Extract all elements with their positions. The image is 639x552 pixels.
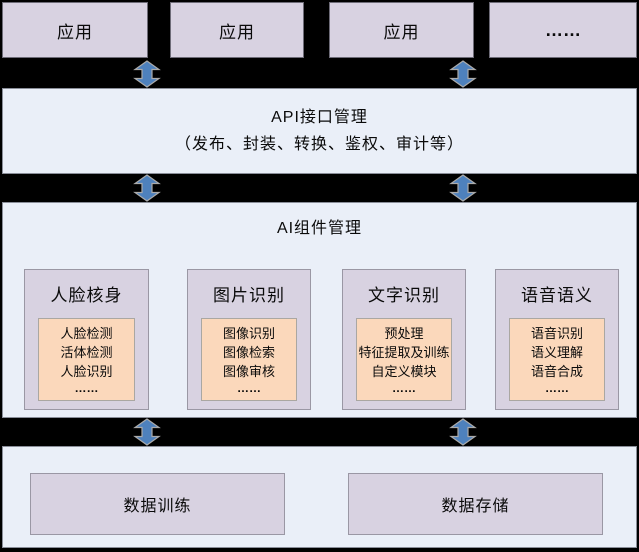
app-box-label: 应用 [384, 18, 420, 43]
double-arrow-icon [449, 60, 477, 88]
api-management-layer: API接口管理 （发布、封装、转换、鉴权、审计等） [2, 88, 637, 174]
module-item-ellipsis: …… [75, 381, 99, 396]
module-title: 人脸核身 [25, 270, 148, 317]
double-arrow-icon [449, 174, 477, 202]
module-item-ellipsis: …… [545, 381, 569, 396]
api-layer-subtitle: （发布、封装、转换、鉴权、审计等） [175, 131, 464, 158]
ai-platform-architecture-diagram: 应用 应用 应用 …… API接口管理 （发布、封装、转换、鉴权、审计等） AI… [0, 0, 639, 552]
module-item: 语音识别 [531, 324, 583, 343]
module-item: 图像审核 [223, 362, 275, 381]
data-box-label: 数据训练 [123, 492, 191, 516]
module-text-recognition: 文字识别 预处理 特征提取及训练 自定义模块 …… [342, 269, 466, 410]
module-item: 图像检索 [223, 343, 275, 362]
double-arrow-icon [133, 174, 161, 202]
module-image-recognition: 图片识别 图像识别 图像检索 图像审核 …… [187, 269, 311, 410]
module-item: 预处理 [384, 324, 423, 343]
ai-layer-title: AI组件管理 [3, 203, 636, 238]
api-layer-title: API接口管理 [271, 104, 368, 131]
module-item-list: 语音识别 语义理解 语音合成 …… [509, 318, 605, 401]
module-item: 语义理解 [531, 343, 583, 362]
module-item-list: 预处理 特征提取及训练 自定义模块 …… [356, 318, 452, 401]
app-box-3: 应用 [329, 2, 474, 58]
module-item: 活体检测 [60, 343, 112, 362]
module-item: 自定义模块 [371, 362, 436, 381]
ai-component-layer: AI组件管理 人脸核身 人脸检测 活体检测 人脸识别 …… 图片识别 图像识别 … [2, 202, 637, 418]
module-title: 文字识别 [343, 270, 465, 317]
module-title: 图片识别 [188, 270, 310, 317]
app-box-more: …… [489, 2, 637, 58]
app-box-label: 应用 [57, 18, 93, 43]
module-item-ellipsis: …… [392, 381, 416, 396]
module-title: 语音语义 [496, 270, 618, 317]
module-face-verification: 人脸核身 人脸检测 活体检测 人脸识别 …… [24, 269, 149, 410]
app-box-label: 应用 [219, 18, 255, 43]
module-item-list: 图像识别 图像检索 图像审核 …… [201, 318, 297, 401]
module-item: 语音合成 [531, 362, 583, 381]
app-box-1: 应用 [2, 2, 148, 58]
data-box-label: 数据存储 [441, 492, 509, 516]
ellipsis-label: …… [545, 20, 581, 41]
module-item: 人脸识别 [60, 362, 112, 381]
data-storage-box: 数据存储 [348, 473, 603, 535]
module-speech-semantics: 语音语义 语音识别 语义理解 语音合成 …… [495, 269, 619, 410]
module-item: 特征提取及训练 [358, 343, 449, 362]
data-layer: 数据训练 数据存储 [2, 446, 637, 548]
module-item: 人脸检测 [60, 324, 112, 343]
module-item: 图像识别 [223, 324, 275, 343]
double-arrow-icon [133, 60, 161, 88]
double-arrow-icon [133, 418, 161, 446]
module-item-ellipsis: …… [237, 381, 261, 396]
app-box-2: 应用 [170, 2, 304, 58]
double-arrow-icon [449, 418, 477, 446]
module-item-list: 人脸检测 活体检测 人脸识别 …… [38, 318, 135, 401]
data-training-box: 数据训练 [30, 473, 285, 535]
